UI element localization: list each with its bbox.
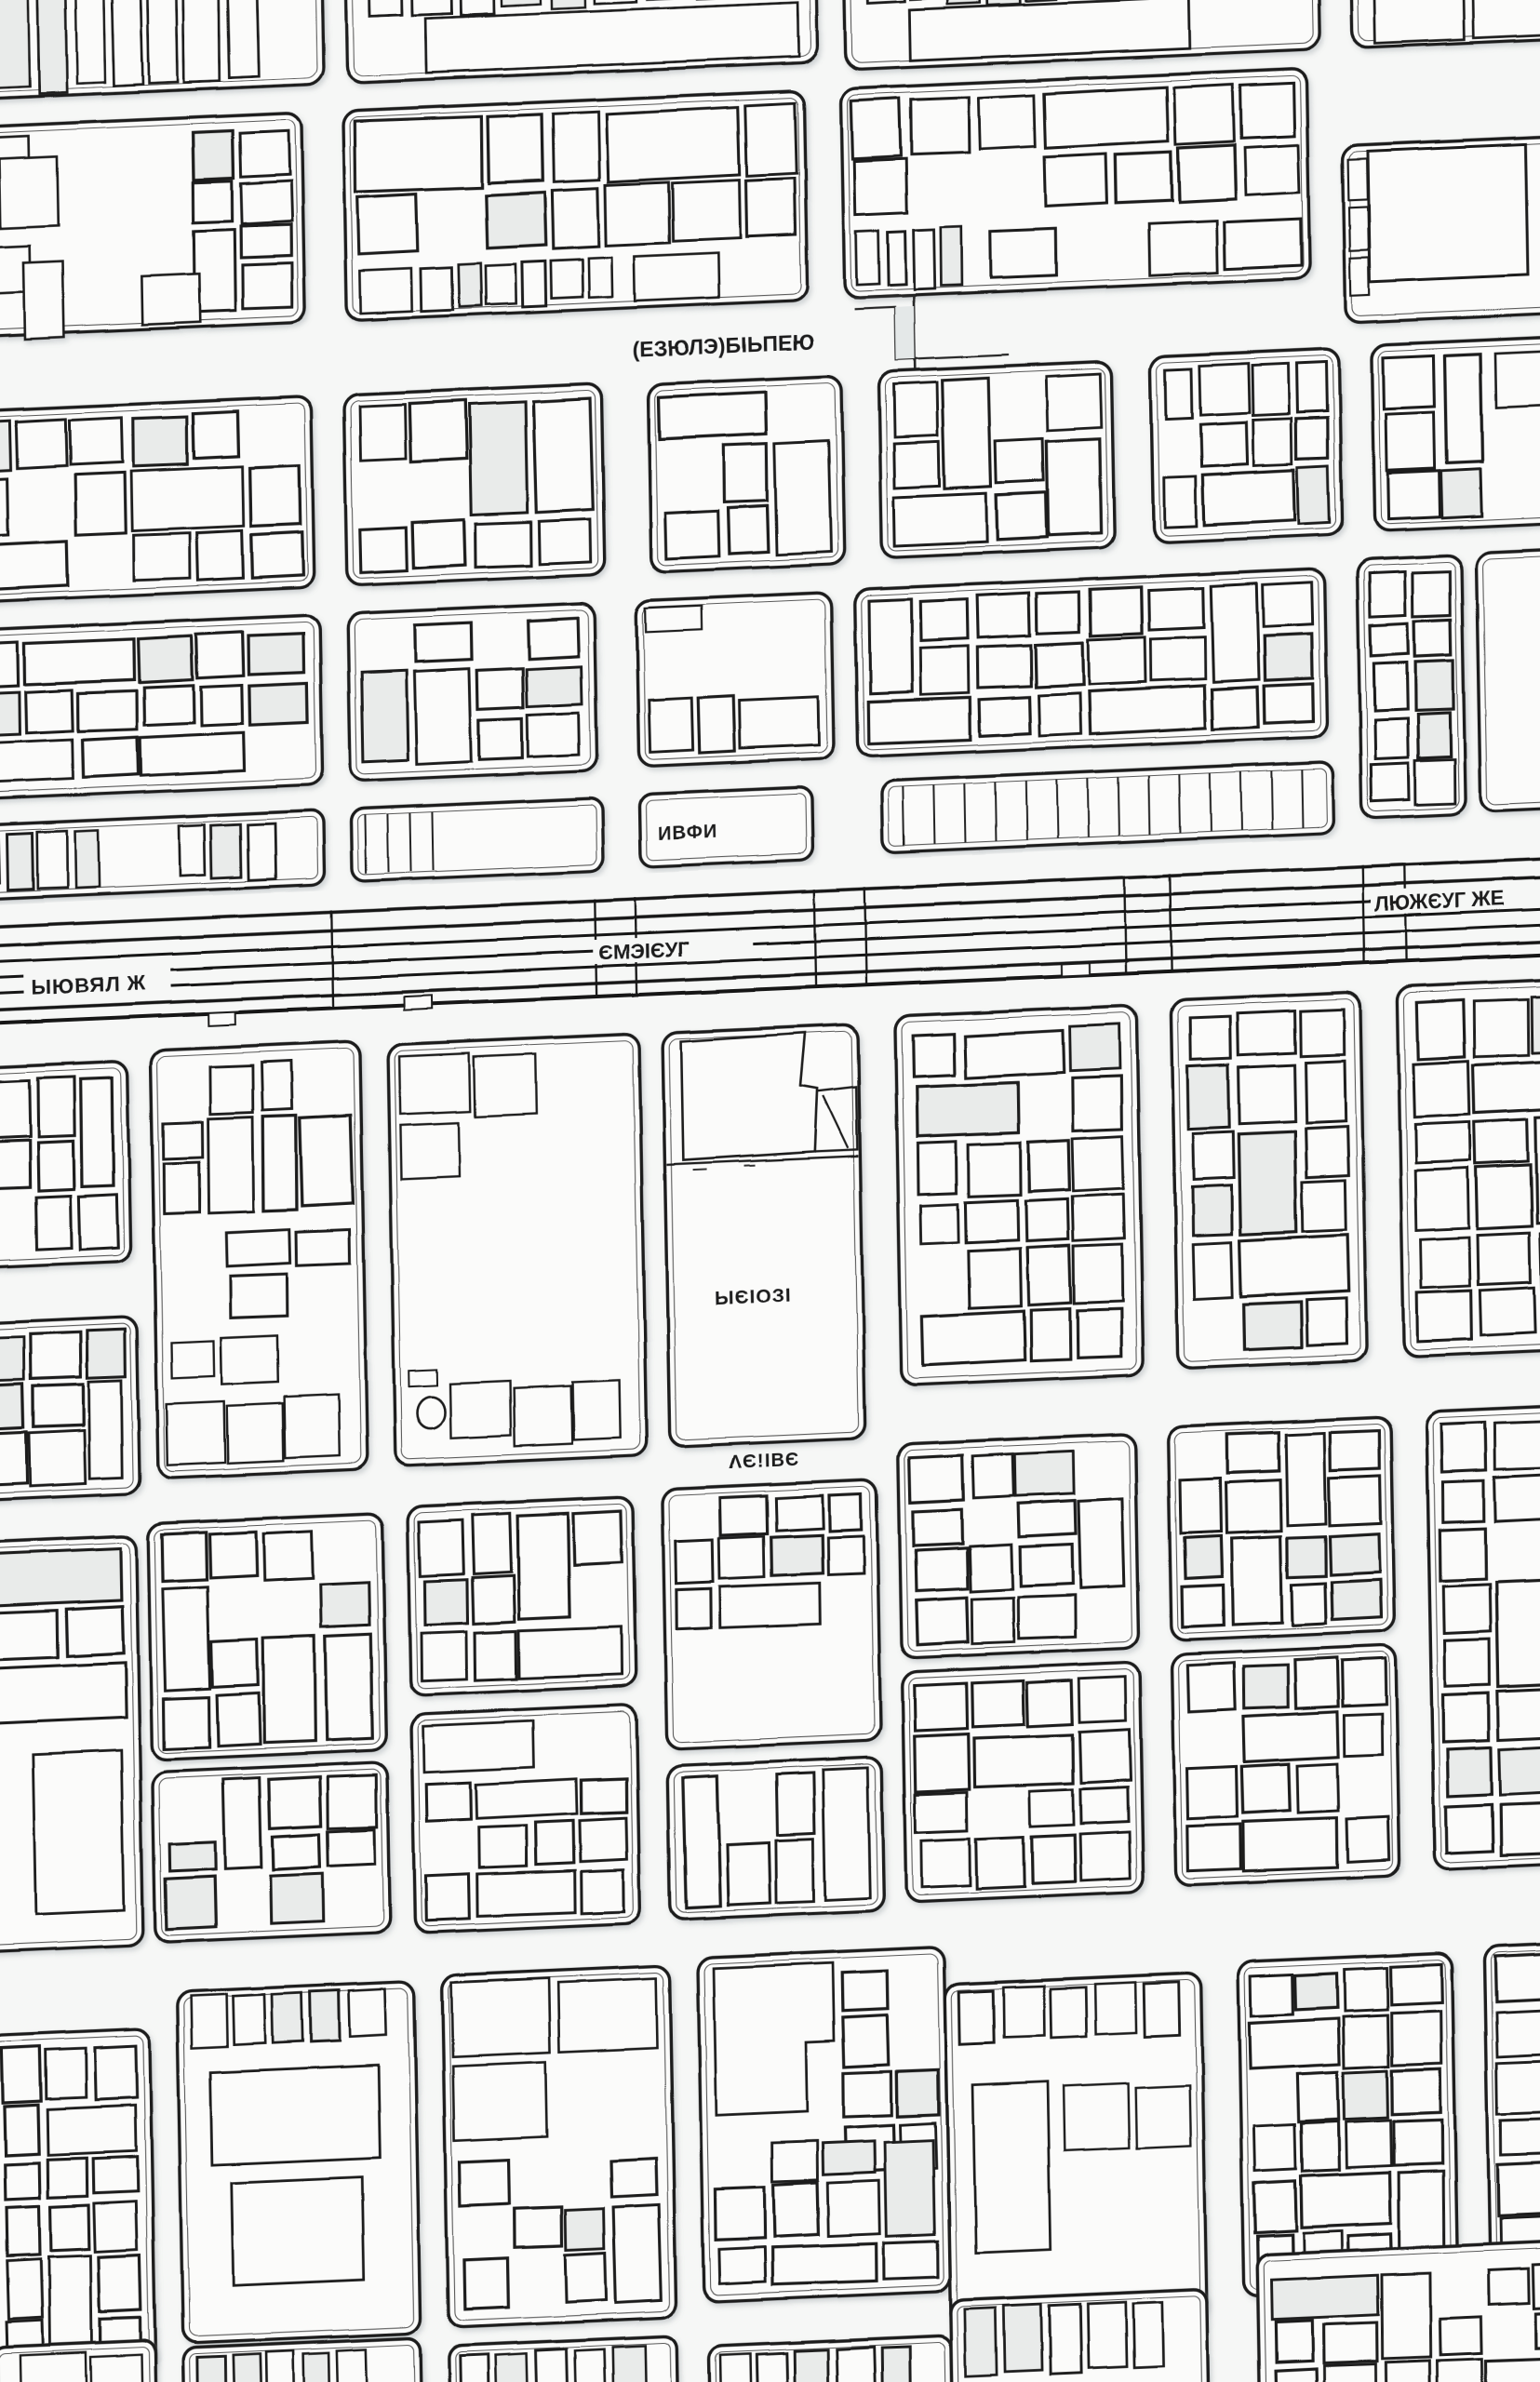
svg-text:ЄМЭІЄУГ: ЄМЭІЄУГ [598,938,690,965]
svg-text:ИВФИ: ИВФИ [658,822,717,845]
svg-text:ЫЄІОЗІ: ЫЄІОЗІ [715,1285,792,1310]
svg-text:ΛЄ!ІВЄ: ΛЄ!ІВЄ [730,1450,799,1473]
